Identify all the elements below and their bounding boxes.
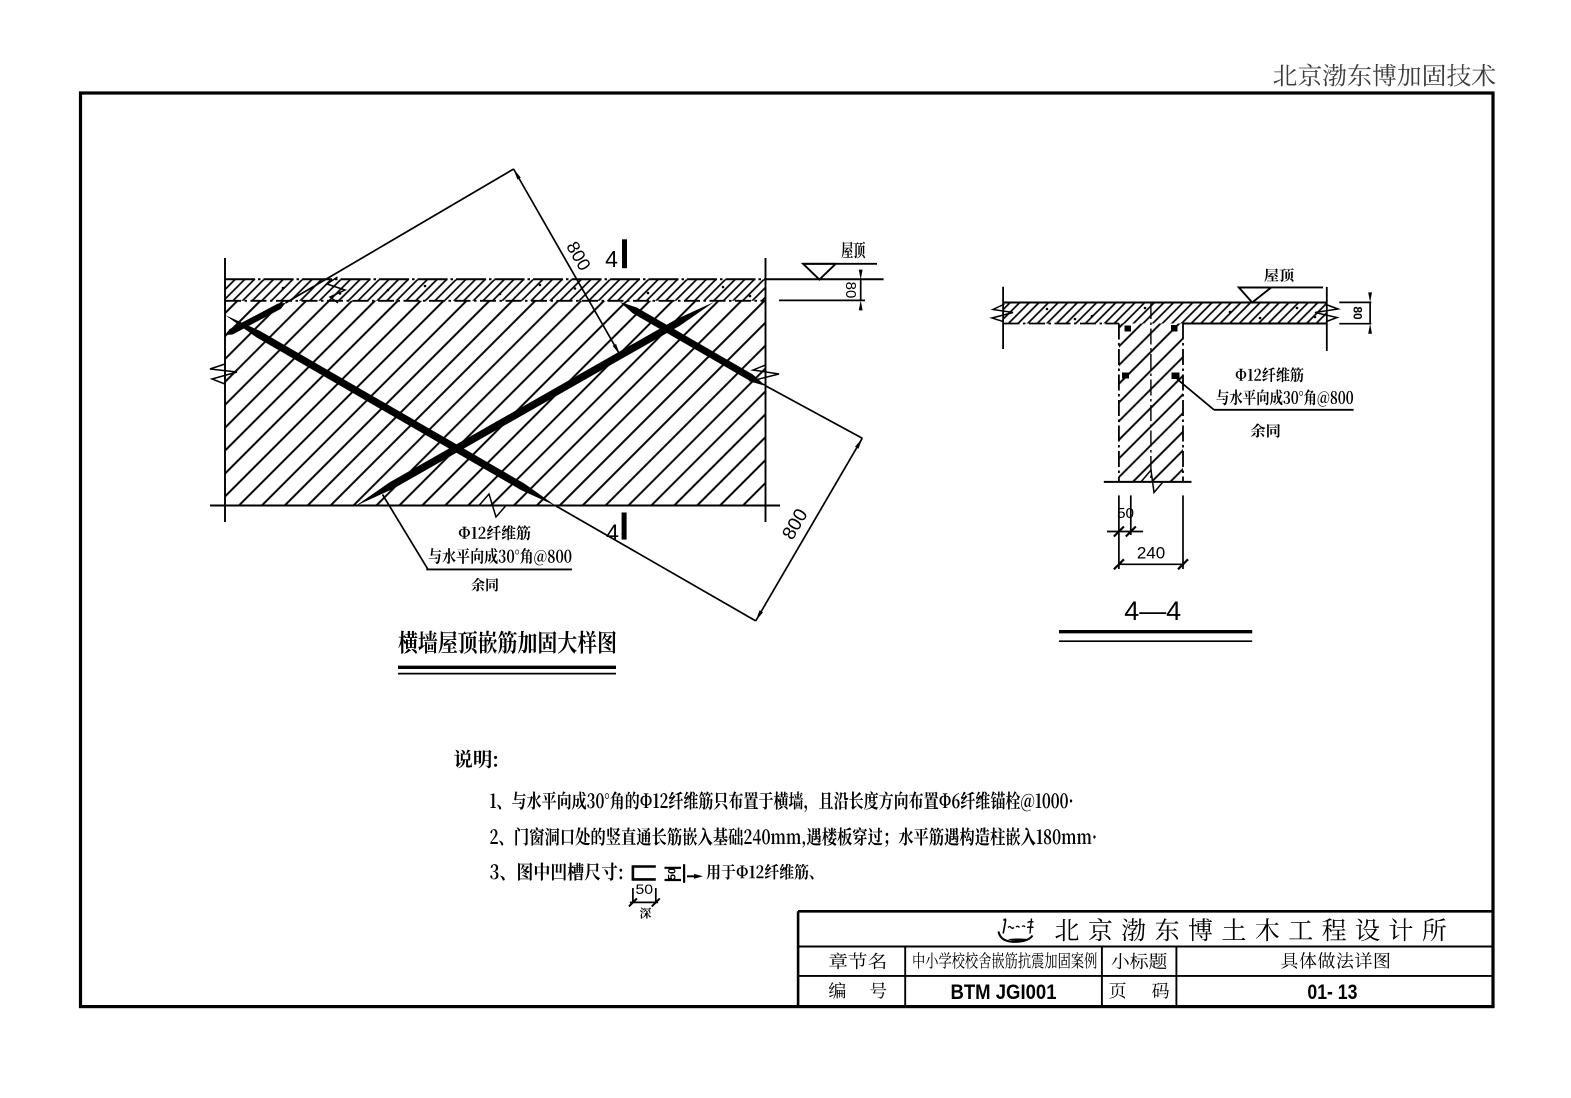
svg-text:BTM JGI001: BTM JGI001: [951, 981, 1057, 1004]
svg-text:4: 4: [605, 246, 618, 272]
svg-text:4: 4: [606, 520, 619, 546]
svg-text:50: 50: [636, 881, 654, 897]
svg-text:80: 80: [1351, 306, 1365, 320]
svg-text:50: 50: [667, 868, 679, 880]
svg-text:50: 50: [1117, 505, 1134, 522]
svg-text:80: 80: [842, 282, 859, 299]
svg-text:01- 13: 01- 13: [1307, 981, 1357, 1004]
svg-text:240: 240: [1137, 544, 1165, 563]
svg-text:4—4: 4—4: [1124, 596, 1181, 626]
